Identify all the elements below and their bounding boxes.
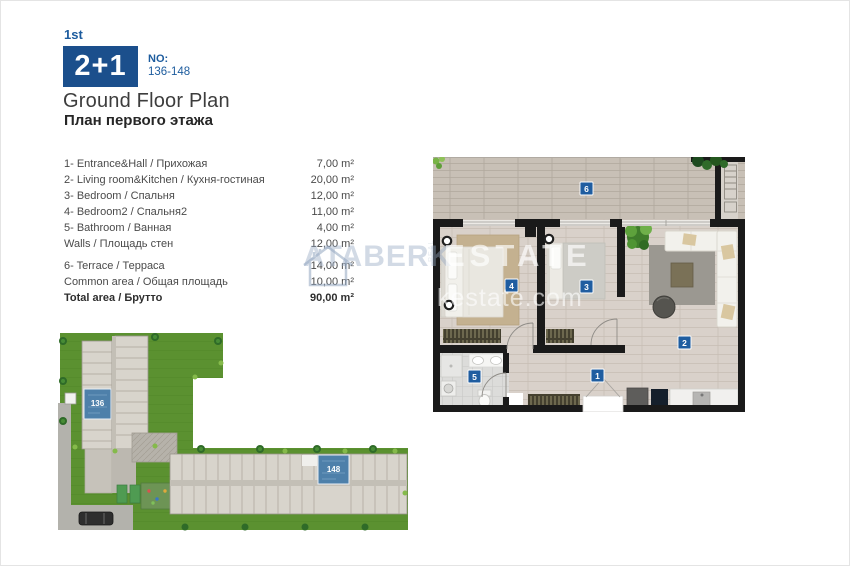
- flyer-page: 1st 2+1 NO: 136-148 Ground Floor Plan Пл…: [0, 0, 850, 566]
- svg-text:2: 2: [682, 338, 687, 348]
- svg-text:6: 6: [584, 184, 589, 194]
- summary-label: Total area / Брутто: [64, 290, 162, 306]
- room-area: 12,00 m²: [311, 188, 354, 204]
- svg-text:5: 5: [472, 372, 477, 382]
- room-area: 4,00 m²: [317, 220, 354, 236]
- room-row: 3- Bedroom / Спальня12,00 m²: [64, 188, 354, 204]
- svg-text:1: 1: [595, 371, 600, 381]
- summary-label: 6- Terrace / Терраса: [64, 258, 165, 274]
- room-row: 1- Entrance&Hall / Прихожая7,00 m²: [64, 156, 354, 172]
- summary-row: 6- Terrace / Терраса14,00 m²: [64, 258, 354, 274]
- room-badge-3: 3: [580, 280, 593, 293]
- summary-label: Common area / Общая площадь: [64, 274, 228, 290]
- room-badge-4: 4: [505, 279, 518, 292]
- room-label: 5- Bathroom / Ванная: [64, 220, 171, 236]
- site-plan: 136: [55, 333, 415, 533]
- room-badge-1: 1: [591, 369, 604, 382]
- room-row: 4- Bedroom2 / Спальня211,00 m²: [64, 204, 354, 220]
- no-value: 136-148: [148, 66, 190, 78]
- floor-label: 1st: [64, 27, 83, 42]
- svg-text:148: 148: [327, 465, 341, 474]
- svg-text:4: 4: [509, 281, 514, 291]
- summary-row-total: Total area / Брутто90,00 m²: [64, 290, 354, 306]
- room-area: 11,00 m²: [311, 204, 354, 220]
- room-label: 2- Living room&Kitchen / Кухня-гостиная: [64, 172, 265, 188]
- unit-type-text: 2+1: [74, 50, 126, 83]
- svg-text:136: 136: [91, 399, 105, 408]
- no-label: NO:: [148, 53, 168, 65]
- highlighted-unit-148: 148: [318, 455, 349, 484]
- room-label: 1- Entrance&Hall / Прихожая: [64, 156, 207, 172]
- room-badge-2: 2: [678, 336, 691, 349]
- building-wing-horizontal: [170, 454, 407, 514]
- highlighted-unit-136: 136: [84, 389, 111, 419]
- unit-type-badge: 2+1: [63, 46, 138, 87]
- windows: [463, 220, 710, 226]
- car-icon: [79, 512, 113, 525]
- summary-area: 10,00 m²: [311, 274, 354, 290]
- room-label: 3- Bedroom / Спальня: [64, 188, 175, 204]
- room-row: Walls / Площадь стен12,00 m²: [64, 236, 354, 252]
- room-list: 1- Entrance&Hall / Прихожая7,00 m² 2- Li…: [64, 156, 354, 252]
- room-badge-6: 6: [580, 182, 593, 195]
- room-row: 5- Bathroom / Ванная4,00 m²: [64, 220, 354, 236]
- living-plant-icon: [625, 223, 652, 250]
- garden-hut: [65, 393, 76, 404]
- floor-plan: 6 4 3 2 5 1: [433, 157, 745, 412]
- room-badge-5: 5: [468, 370, 481, 383]
- svg-text:3: 3: [584, 282, 589, 292]
- page-title: Ground Floor Plan: [63, 90, 230, 113]
- room-area: 12,00 m²: [311, 236, 354, 252]
- summary-area: 90,00 m²: [310, 290, 354, 306]
- room-row: 2- Living room&Kitchen / Кухня-гостиная2…: [64, 172, 354, 188]
- summary-list: 6- Terrace / Терраса14,00 m² Common area…: [64, 258, 354, 306]
- room-label: Walls / Площадь стен: [64, 236, 173, 252]
- summary-area: 14,00 m²: [311, 258, 354, 274]
- summary-row: Common area / Общая площадь10,00 m²: [64, 274, 354, 290]
- bedroom3-furniture: [547, 243, 605, 299]
- page-subtitle: План первого этажа: [64, 112, 213, 129]
- room-area: 7,00 m²: [317, 156, 354, 172]
- room-area: 20,00 m²: [311, 172, 354, 188]
- room-label: 4- Bedroom2 / Спальня2: [64, 204, 187, 220]
